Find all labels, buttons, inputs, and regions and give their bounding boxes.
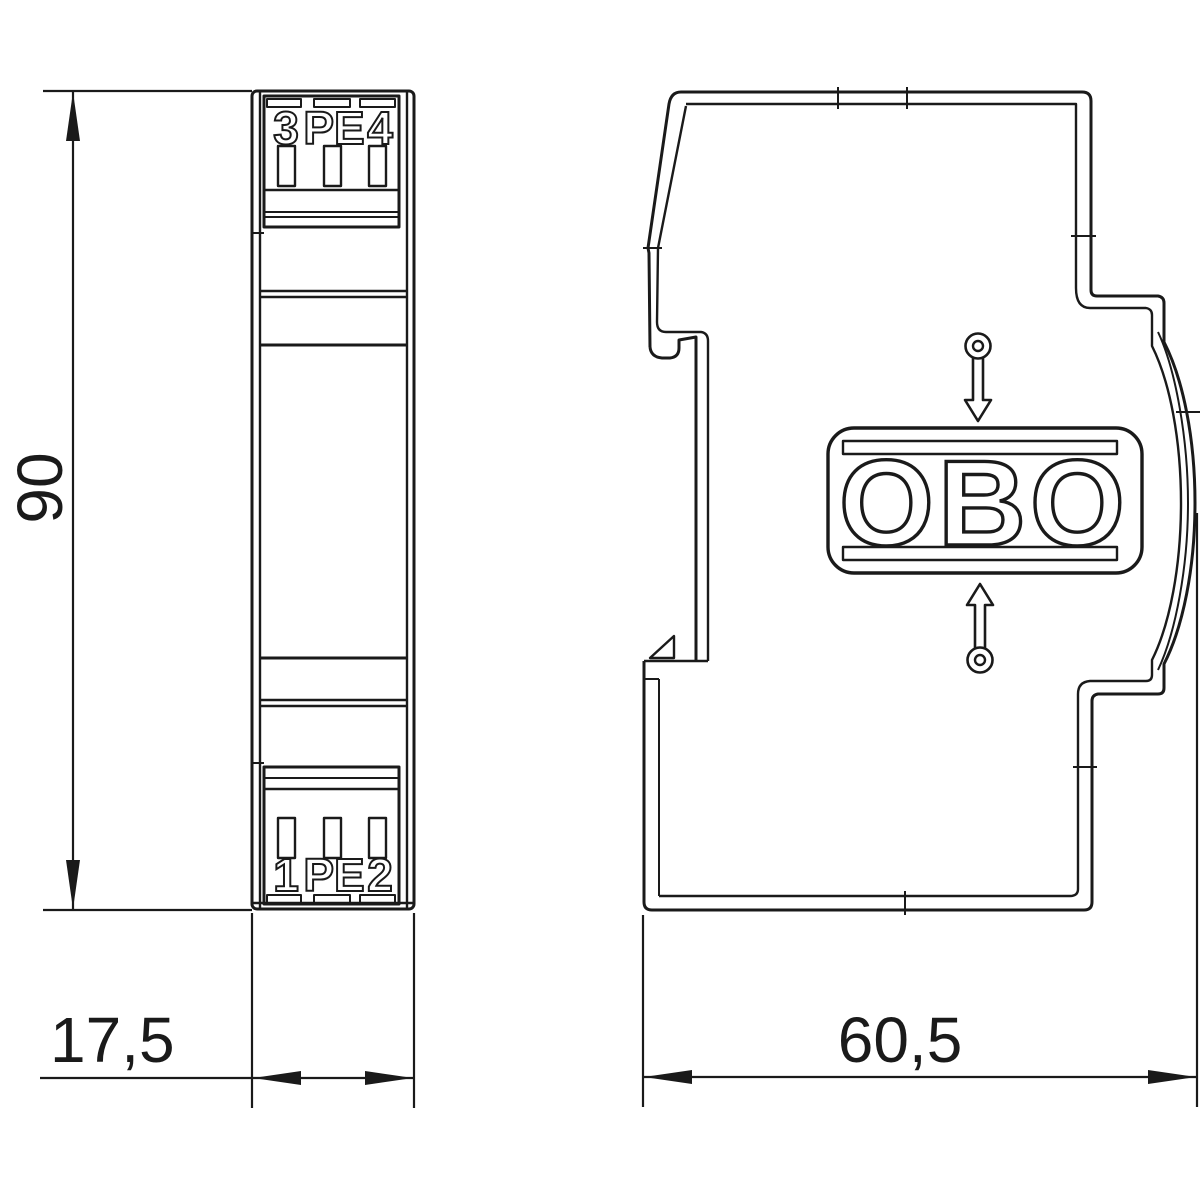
dimension-depth: 60,5 [643,513,1197,1107]
dimension-width-value: 17,5 [50,1004,175,1076]
arrowhead-right-icon [1148,1070,1196,1084]
front-view: 3 PE 4 [252,91,414,909]
front-terminal-block-bottom: 1 PE 2 [264,767,399,904]
din-clip-wedge [650,636,674,658]
arrowhead-left-icon [644,1070,692,1084]
front-outline [252,91,414,909]
arrow-down-shaft [965,352,991,421]
front-terminal-block-top: 3 PE 4 [252,96,399,233]
drawing-canvas: 3 PE 4 [0,0,1200,1200]
side-inner-left-line [657,106,708,661]
arrow-up-shaft [967,584,993,654]
front-face-lines [252,291,414,903]
dimension-width: 17,5 [40,913,414,1108]
side-arc-middle-line [1158,332,1188,670]
terminal-label-pe-bottom: PE [303,849,364,901]
arrow-up-icon [967,584,993,673]
arrow-ring [966,334,991,359]
din-clip-hook [650,337,696,661]
arrowhead-down-icon [66,860,80,909]
obo-logo-text: OBO [839,435,1129,571]
dimension-height-value: 90 [4,452,76,523]
arrow-ring [968,648,993,673]
dimension-height: 90 [4,91,252,910]
arrowhead-left-icon [253,1071,301,1085]
arrow-down-icon [965,334,991,422]
logo-plate: OBO [828,428,1142,573]
arrowhead-up-icon [66,92,80,141]
terminal-label-1: 1 [273,849,299,901]
technical-drawing: 3 PE 4 [0,0,1200,1200]
side-view: OBO [643,87,1200,915]
dimension-depth-value: 60,5 [838,1004,963,1076]
terminal-label-2: 2 [367,849,393,901]
arrowhead-right-icon [365,1071,413,1085]
